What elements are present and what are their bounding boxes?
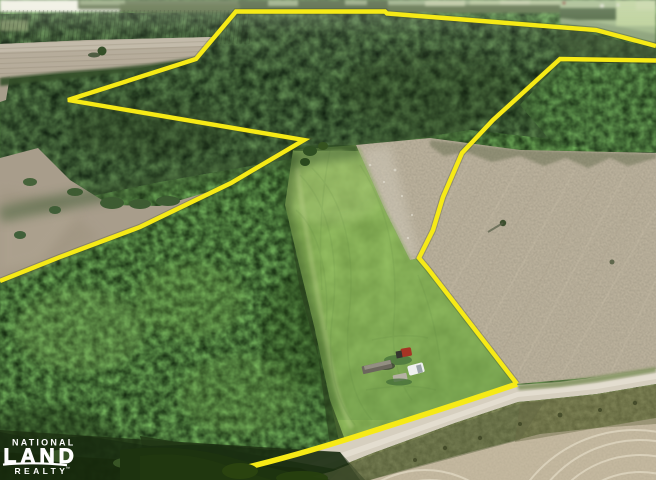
svg-text:™: ™ [66, 466, 71, 471]
svg-text:REALTY: REALTY [15, 466, 69, 476]
